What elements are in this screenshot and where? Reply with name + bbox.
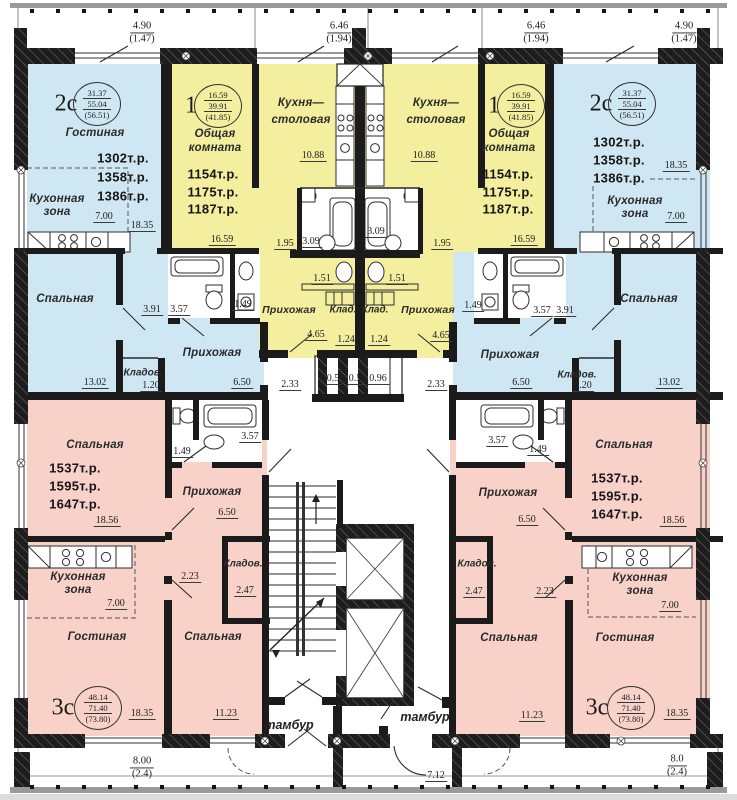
price-label: 1386т.р. [593, 171, 645, 186]
dimension-label: 1.49 [527, 444, 549, 456]
dimension-label: 2.33 [279, 379, 301, 391]
room-label-living: Гостиная [66, 127, 125, 139]
labels-layer: 4.90 (1.47) 6.46 (1.94) 6.46 (1.94) 4.90… [0, 0, 737, 800]
dim-sub: (1.94) [523, 34, 548, 46]
dimension-label: 0.5 [325, 373, 342, 385]
dimension-label: 1.49 [462, 300, 484, 312]
dimension-top-right: 4.90 (1.47) [671, 20, 696, 45]
dimension-top-left: 4.90 (1.47) [129, 20, 154, 45]
dim-value: 4.90 [130, 20, 154, 33]
area-line: (56.51) [620, 110, 645, 120]
room-label-kitchen: зона [627, 585, 654, 597]
room-label-main: комната [483, 142, 536, 154]
area-line: (41.85) [206, 112, 231, 122]
dimension-label: 0.96 [367, 373, 389, 385]
price-label: 1595т.р. [591, 489, 643, 504]
room-label-bedroom: Спальная [595, 439, 653, 451]
room-label-closet: Кладов. [457, 559, 496, 570]
dimension-label: 2.23 [534, 586, 556, 598]
dimension-label: 2.47 [234, 585, 256, 597]
dimension-label: 7.00 [665, 211, 687, 223]
apartment-type-label: 3с [586, 695, 609, 722]
room-label-kitchen: зона [44, 206, 71, 218]
dimension-label: 3.57 [486, 435, 508, 447]
dimension-label: 13.02 [656, 377, 683, 389]
dimension-label: 3.57 [531, 305, 553, 317]
price-label: 1595т.р. [49, 479, 101, 494]
price-label: 1302т.р. [593, 135, 645, 150]
dim-value: 4.90 [672, 20, 696, 33]
dimension-label: 3.57 [168, 304, 190, 316]
dim-sub: (1.47) [671, 34, 696, 46]
area-line: 16.59 [204, 90, 231, 101]
dimension-label: 11.23 [213, 708, 239, 720]
dimension-label: 18.56 [660, 515, 687, 527]
dimension-label: 0.5 [347, 373, 364, 385]
room-label-closet: Кладов. [557, 370, 596, 381]
price-label: 1537т.р. [591, 471, 643, 486]
dimension-label: 16.59 [209, 234, 236, 246]
dimension-label: 13.02 [82, 377, 109, 389]
dimension-label: 10.88 [411, 150, 438, 162]
area-line: 71.40 [617, 703, 644, 714]
apartment-type-label: 3с [52, 695, 75, 722]
price-label: 1154т.р. [188, 167, 239, 182]
price-label: 1386т.р. [97, 189, 149, 204]
dim-value: 8.0 [667, 753, 686, 766]
dimension-label: 3.09 [365, 226, 387, 238]
room-label-hall: Прихожая [479, 487, 538, 499]
room-label-living: Гостиная [68, 631, 127, 643]
room-label-kitchen-dining: Кухня— [278, 97, 324, 109]
area-line: (56.51) [85, 110, 110, 120]
area-line: 55.04 [83, 99, 110, 110]
dim-value: 6.46 [327, 20, 351, 33]
room-label-living: Гостиная [596, 632, 655, 644]
room-label-bedroom: Спальная [66, 439, 124, 451]
dim-value: 8.00 [130, 755, 154, 768]
dim-sub: (1.94) [326, 34, 351, 46]
area-circle: 48.14 71.40 (73.80) [607, 686, 655, 730]
price-label: 1175т.р. [483, 185, 534, 200]
price-label: 1187т.р. [188, 202, 239, 217]
area-line: 55.04 [618, 99, 645, 110]
room-label-closet: Клад. [362, 305, 389, 316]
room-label-hall: Прихожая [262, 304, 316, 316]
room-label-kitchen: Кухонная [50, 571, 105, 583]
dim-sub: (1.47) [129, 34, 154, 46]
area-line: 48.14 [617, 692, 644, 703]
dimension-bottom-left: 8.00 (2.4) [130, 755, 154, 780]
dimension-label: 2.33 [425, 379, 447, 391]
price-label: 1187т.р. [483, 202, 534, 217]
area-line: (73.80) [619, 714, 644, 724]
dimension-label: 3.91 [554, 305, 576, 317]
room-label-main: Общая [489, 128, 530, 140]
room-label-kitchen-dining: столовая [406, 114, 465, 126]
room-label-bedroom: Спальная [184, 631, 242, 643]
area-circle: 48.14 71.40 (73.80) [74, 686, 122, 730]
price-label: 1358т.р. [97, 170, 149, 185]
dimension-label: 18.35 [129, 220, 156, 232]
dimension-label: 7.00 [105, 598, 127, 610]
area-line: 39.91 [204, 101, 231, 112]
dimension-label: 1.95 [274, 238, 296, 250]
area-line: 31.37 [83, 88, 110, 99]
dim-sub: (2.4) [132, 769, 152, 781]
dimension-label: 1.51 [386, 273, 408, 285]
floor-plan: 4.90 (1.47) 6.46 (1.94) 6.46 (1.94) 4.90… [0, 0, 737, 800]
area-line: 71.40 [84, 703, 111, 714]
room-label-hall: Прихожая [183, 486, 242, 498]
price-label: 1537т.р. [49, 461, 101, 476]
dim-sub: (2.4) [667, 767, 687, 779]
room-label-kitchen: Кухонная [29, 193, 84, 205]
dimension-label: 18.35 [129, 708, 156, 720]
dimension-bottom-right: 8.0 (2.4) [667, 753, 687, 778]
dimension-label: 7.00 [659, 600, 681, 612]
dimension-label: 3.09 [300, 236, 322, 248]
dimension-label: 18.35 [663, 160, 690, 172]
dimension-label: 1.49 [232, 299, 254, 311]
area-line: 48.14 [84, 692, 111, 703]
room-label-closet: Кладов. [123, 368, 162, 379]
area-circle: 31.37 55.04 (56.51) [608, 82, 656, 126]
area-line: 39.91 [507, 101, 534, 112]
room-label-hall: Прихожая [401, 304, 455, 316]
area-circle: 31.37 55.04 (56.51) [73, 82, 121, 126]
room-label-kitchen-dining: столовая [271, 114, 330, 126]
room-label-bedroom: Спальная [620, 293, 678, 305]
room-label-hall: Прихожая [481, 349, 540, 361]
dimension-label: 1.24 [368, 334, 390, 346]
dimension-label: 18.56 [94, 515, 121, 527]
dimension-top-midright: 6.46 (1.94) [523, 20, 548, 45]
dimension-label: 11.23 [519, 710, 545, 722]
room-label-closet: Клад. [330, 305, 357, 316]
dimension-label: 1.95 [431, 238, 453, 250]
area-circle: 16.59 39.91 (41.85) [194, 84, 242, 128]
dimension-bottom-center: 7.12 [425, 770, 447, 782]
price-label: 1647т.р. [49, 497, 101, 512]
room-label-kitchen-dining: Кухня— [413, 97, 459, 109]
dimension-label: 3.57 [239, 431, 261, 443]
room-label-main: комната [189, 142, 242, 154]
dimension-label: 1.51 [311, 273, 333, 285]
room-label-bedroom: Спальная [36, 293, 94, 305]
dimension-label: 1.20 [140, 380, 162, 392]
room-label-kitchen: Кухонная [612, 572, 667, 584]
room-label-bedroom: Спальная [480, 632, 538, 644]
dimension-label: 3.91 [141, 304, 163, 316]
dimension-label: 7.00 [93, 211, 115, 223]
dimension-label: 1.49 [171, 446, 193, 458]
dimension-label: 10.88 [300, 150, 327, 162]
room-label-main: Общая [195, 128, 236, 140]
area-line: (41.85) [509, 112, 534, 122]
area-line: (73.80) [86, 714, 111, 724]
dimension-label: 1.24 [335, 334, 357, 346]
room-label-kitchen: зона [622, 208, 649, 220]
area-circle: 16.59 39.91 (41.85) [497, 84, 545, 128]
room-label-closet: Кладов. [223, 559, 262, 570]
price-label: 1175т.р. [188, 185, 239, 200]
dimension-label: 6.50 [231, 377, 253, 389]
dimension-label: 4.65 [430, 330, 452, 342]
room-label-kitchen: зона [65, 584, 92, 596]
dimension-label: 4.65 [305, 329, 327, 341]
dimension-label: 6.50 [510, 377, 532, 389]
dim-value: 6.46 [524, 20, 548, 33]
room-label-kitchen: Кухонная [607, 195, 662, 207]
price-label: 1302т.р. [97, 151, 149, 166]
price-label: 1154т.р. [483, 167, 534, 182]
price-label: 1358т.р. [593, 153, 645, 168]
area-line: 16.59 [507, 90, 534, 101]
dimension-label: 1.20 [572, 380, 594, 392]
area-line: 31.37 [618, 88, 645, 99]
dimension-top-midleft: 6.46 (1.94) [326, 20, 351, 45]
dimension-label: 6.50 [516, 514, 538, 526]
room-label-hall: Прихожая [183, 347, 242, 359]
price-label: 1647т.р. [591, 507, 643, 522]
room-label-vestibule: тамбур [264, 718, 313, 732]
dimension-label: 6.50 [216, 507, 238, 519]
dimension-label: 2.23 [179, 571, 201, 583]
dimension-label: 2.47 [463, 586, 485, 598]
dimension-label: 18.35 [664, 708, 691, 720]
dimension-label: 16.59 [511, 234, 538, 246]
room-label-vestibule: тамбур [400, 710, 449, 724]
